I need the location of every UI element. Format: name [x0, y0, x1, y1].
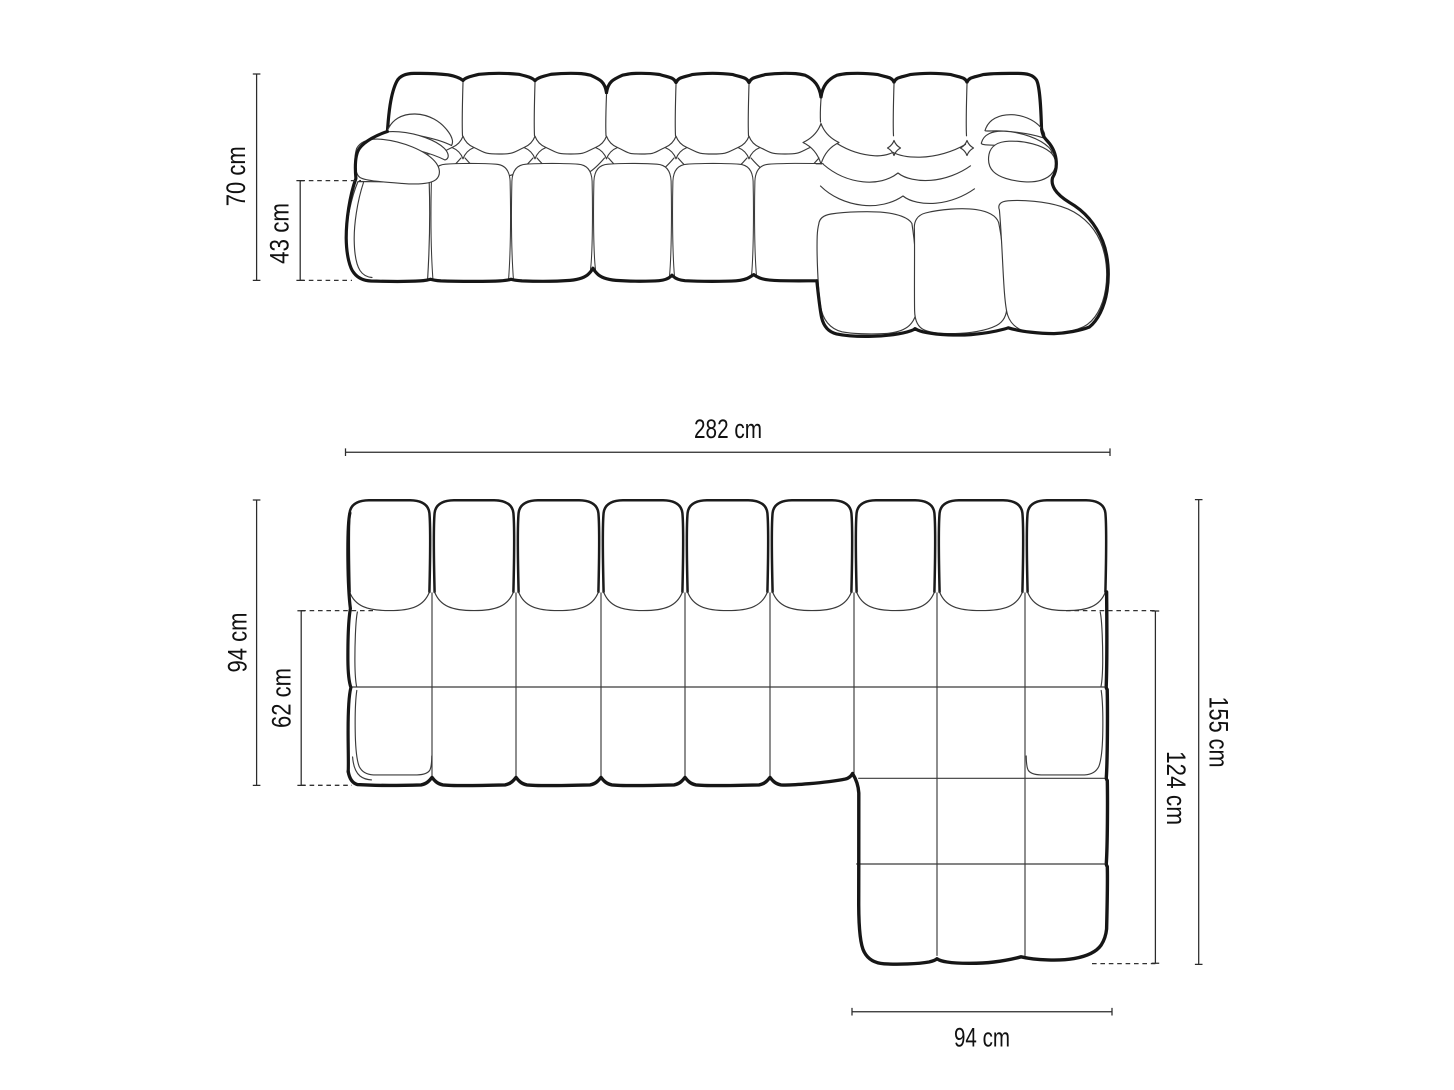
svg-text:282 cm: 282 cm: [694, 414, 762, 444]
svg-text:43 cm: 43 cm: [264, 203, 294, 264]
svg-text:62 cm: 62 cm: [267, 668, 297, 728]
svg-text:155 cm: 155 cm: [1204, 697, 1234, 768]
svg-text:94 cm: 94 cm: [223, 613, 253, 673]
svg-text:94 cm: 94 cm: [954, 1022, 1010, 1052]
svg-text:124 cm: 124 cm: [1161, 751, 1191, 825]
svg-text:70 cm: 70 cm: [221, 146, 251, 206]
